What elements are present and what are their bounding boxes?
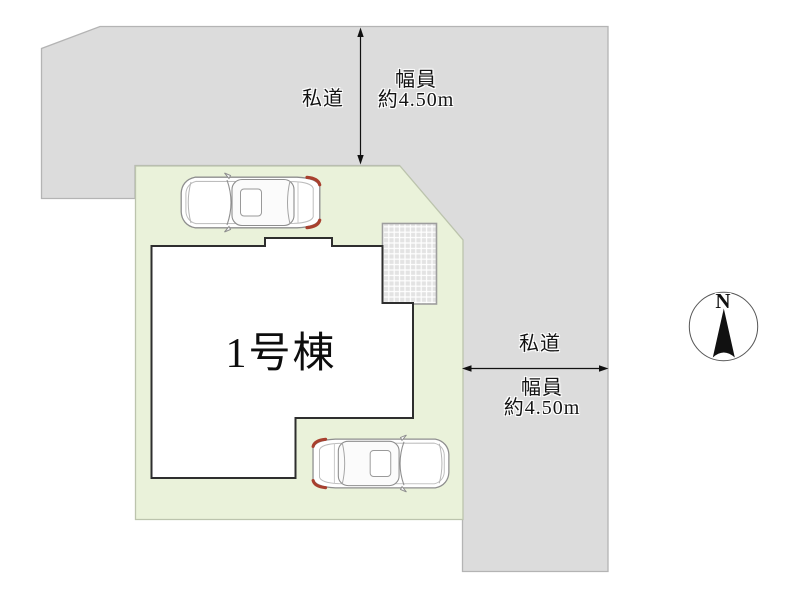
- road-name-label-right: 私道: [519, 334, 561, 354]
- parked-car-icon: [181, 173, 320, 232]
- compass-north-label: N: [715, 291, 730, 311]
- road-width-value: 約4.50m: [378, 90, 455, 110]
- parked-car-icon: [313, 435, 449, 492]
- road-width-label-top: 幅員 約4.50m: [378, 70, 455, 110]
- road-name-label-top: 私道: [302, 89, 344, 109]
- road-width-label-right: 幅員 約4.50m: [504, 378, 581, 418]
- road-width-caption: 幅員: [378, 70, 455, 90]
- building-label: 1号棟: [225, 333, 336, 375]
- road-width-value: 約4.50m: [504, 398, 581, 418]
- site-plan-canvas: 私道 幅員 約4.50m 私道 幅員 約4.50m 1号棟 N: [0, 0, 800, 600]
- terrace-hatch: [383, 224, 437, 305]
- road-width-caption: 幅員: [504, 378, 581, 398]
